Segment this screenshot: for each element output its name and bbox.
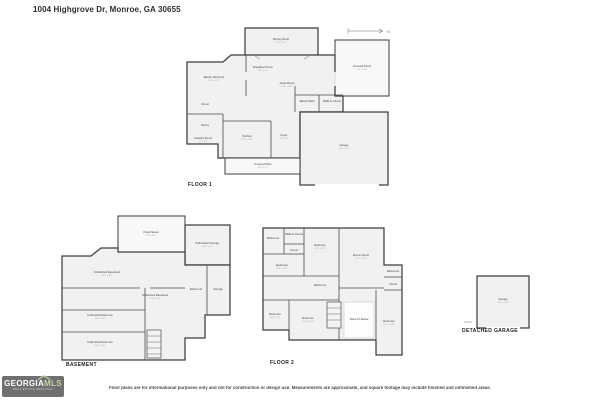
room-label: Bedroom10'6" x 13'0": [383, 319, 395, 326]
basement-drawing: Crawl Space21'0" x 11'0"Unfinished Stora…: [55, 212, 235, 374]
floor-plan-sheet: 1004 Highgrove Dr, Monroe, GA 30655 N Di…: [0, 0, 600, 400]
basement-caption: BASEMENT: [66, 362, 97, 368]
room-label: Garage23'8" x 23'4": [497, 297, 509, 304]
room-label: Bathroom: [267, 236, 280, 240]
room-label: Foyer7'6" x 5'8": [279, 133, 288, 140]
room-label: Bedroom12'4" x 10'2": [276, 263, 288, 270]
floor2-plan: BathroomWalk-in ClosetClosetBedroom12'2"…: [262, 224, 404, 366]
room-label: Closet: [201, 102, 209, 106]
room-label: Bedroom11'0" x 9'6": [269, 312, 281, 319]
room-label: Pantry: [201, 123, 210, 127]
floor2-caption: FLOOR 2: [270, 360, 294, 366]
room-label: Storage: [213, 287, 223, 291]
room-label: Bathroom: [314, 283, 327, 287]
room-label: Garage21'5" x 21'2": [338, 143, 350, 150]
room-label: Kitchen13'0" x 12'4": [241, 134, 253, 141]
property-address: 1004 Highgrove Dr, Monroe, GA 30655: [33, 5, 181, 14]
floor2-drawing: BathroomWalk-in ClosetClosetBedroom12'2"…: [262, 224, 404, 366]
room-label: Bathroom: [190, 287, 203, 291]
detached-garage-drawing: Garage23'8" x 23'4": [458, 270, 536, 336]
room-label: Bedroom12'0" x 11'8": [302, 316, 314, 323]
room-label: Master Bath: [300, 99, 315, 103]
room-label: Bathroom: [387, 269, 400, 273]
floor1-plan: Dining Room12'4" x 11'6"Covered Porch17'…: [183, 26, 395, 188]
floor1-caption: FLOOR 1: [188, 182, 212, 188]
room-label: Walk-in Closet: [285, 232, 303, 236]
room-label: Walk-in Closet: [323, 99, 341, 103]
basement-plan: Crawl Space21'0" x 11'0"Unfinished Stora…: [55, 212, 235, 374]
room-label: Closet: [290, 248, 298, 252]
detached-garage-plan: Garage23'8" x 23'4": [458, 270, 536, 336]
disclaimer-text: Floor plans are for informational purpos…: [0, 386, 600, 390]
room-label: Open To Below: [350, 317, 370, 321]
room-label: Bedroom12'2" x 11'6": [314, 243, 326, 250]
house-roof-icon: [37, 375, 51, 380]
detached-garage-caption: DETACHED GARAGE: [462, 328, 518, 334]
floor1-drawing: Dining Room12'4" x 11'6"Covered Porch17'…: [183, 26, 395, 188]
room-label: Closet: [389, 282, 397, 286]
